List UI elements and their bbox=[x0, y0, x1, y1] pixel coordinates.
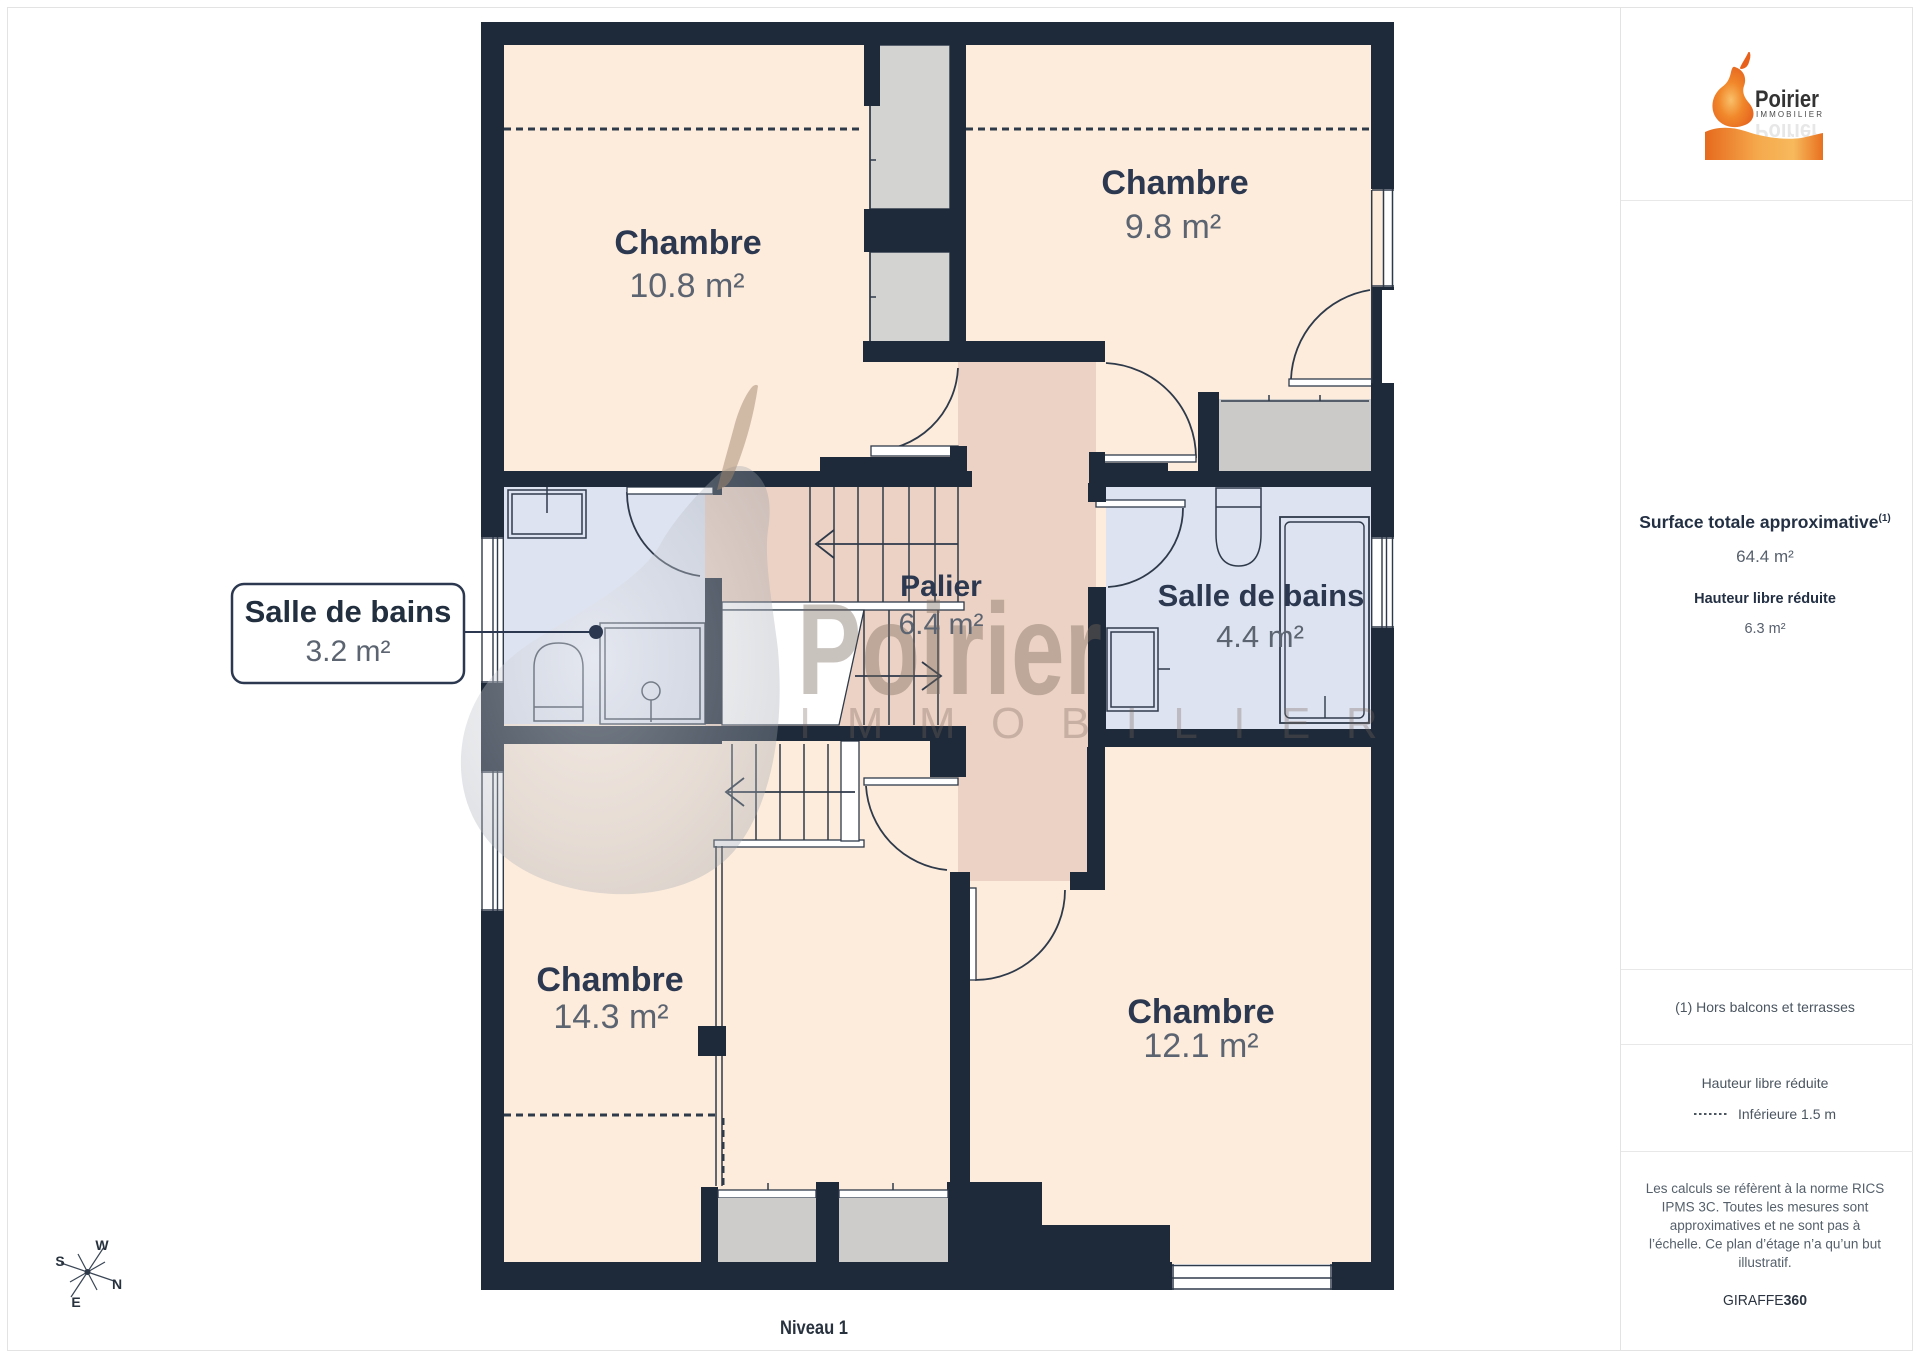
svg-text:Hauteur libre réduite: Hauteur libre réduite bbox=[1702, 1075, 1829, 1091]
svg-text:10.8 m²: 10.8 m² bbox=[629, 267, 744, 305]
svg-text:12.1 m²: 12.1 m² bbox=[1143, 1027, 1258, 1065]
svg-text:W: W bbox=[95, 1237, 109, 1253]
svg-text:(1) Hors balcons et terrasses: (1) Hors balcons et terrasses bbox=[1675, 999, 1855, 1015]
svg-text:6.4 m²: 6.4 m² bbox=[898, 608, 983, 641]
svg-text:l’échelle. Ce plan d’étage n’a: l’échelle. Ce plan d’étage n’a qu’un but bbox=[1649, 1237, 1881, 1252]
svg-text:4.4 m²: 4.4 m² bbox=[1216, 619, 1304, 654]
svg-text:IPMS 3C. Toutes les mesures so: IPMS 3C. Toutes les mesures sont bbox=[1662, 1200, 1869, 1215]
svg-text:Les calculs se réfèrent à la n: Les calculs se réfèrent à la norme RICS bbox=[1646, 1181, 1885, 1196]
svg-text:9.8 m²: 9.8 m² bbox=[1125, 208, 1221, 246]
svg-text:Chambre: Chambre bbox=[536, 961, 683, 999]
svg-text:Chambre: Chambre bbox=[1101, 164, 1248, 202]
svg-text:illustratif.: illustratif. bbox=[1738, 1255, 1791, 1270]
svg-text:Poirier: Poirier bbox=[1755, 86, 1819, 113]
svg-text:Inférieure 1.5 m: Inférieure 1.5 m bbox=[1738, 1106, 1836, 1122]
svg-text:3.2 m²: 3.2 m² bbox=[305, 635, 390, 668]
svg-text:Hauteur libre réduite: Hauteur libre réduite bbox=[1694, 591, 1836, 607]
svg-text:64.4 m²: 64.4 m² bbox=[1736, 547, 1794, 566]
svg-text:Niveau 1: Niveau 1 bbox=[780, 1318, 848, 1339]
svg-text:Palier: Palier bbox=[900, 570, 982, 603]
svg-text:S: S bbox=[55, 1253, 64, 1269]
svg-text:Chambre: Chambre bbox=[614, 224, 761, 262]
svg-text:IMMOBILIER: IMMOBILIER bbox=[1756, 110, 1824, 119]
svg-text:GIRAFFE360: GIRAFFE360 bbox=[1723, 1292, 1807, 1309]
svg-text:Salle de bains: Salle de bains bbox=[1158, 578, 1365, 613]
svg-text:E: E bbox=[71, 1294, 80, 1310]
svg-text:IMMOBILIER: IMMOBILIER bbox=[799, 699, 1413, 748]
svg-text:Chambre: Chambre bbox=[1127, 993, 1274, 1031]
svg-text:14.3 m²: 14.3 m² bbox=[553, 998, 668, 1036]
svg-text:6.3 m²: 6.3 m² bbox=[1744, 621, 1785, 637]
svg-text:approximatives et ne sont pas: approximatives et ne sont pas à bbox=[1670, 1218, 1861, 1233]
svg-text:Salle de bains: Salle de bains bbox=[245, 594, 452, 629]
svg-text:Surface totale approximative(1: Surface totale approximative(1) bbox=[1639, 512, 1890, 532]
svg-text:N: N bbox=[112, 1276, 122, 1292]
